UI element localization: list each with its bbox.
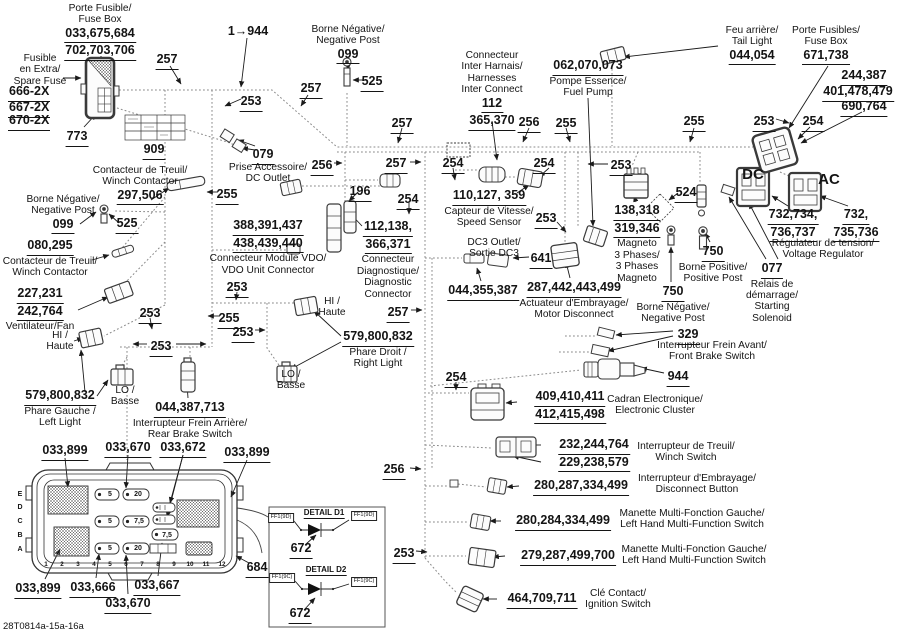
ref-641: 641 [530,251,553,269]
ref-257-e: 257 [387,305,410,323]
spare-fuse-label: Fusibleen Extra/Spare Fuse [14,53,67,87]
ref-256-b: 256 [311,158,334,176]
ref-672-d2: 672 [289,606,312,624]
magneto-label: 138,318319,346Magneto3 Phases/3 PhasesMa… [613,203,660,284]
winch-switch-nums: 232,244,764229,238,579 [558,437,630,472]
disconnect-num: 280,287,334,499 [533,478,629,496]
ref-909: 909 [143,142,166,160]
rear-brake-label: 044,387,713Interrupteur Frein Arrière/Re… [133,400,247,440]
winch-switch-label: Interrupteur de Treuil/Winch Switch [637,441,734,464]
dc3-outlet-label: DC3 Outlet/Sortie DC3 [467,237,520,260]
fb-pin-12: 12 [218,562,225,568]
starting-solenoid-label: 077Relais dedémarrage/StartingSolenoid [746,261,798,324]
fb-672: 033,672 [159,440,206,458]
fuel-pump-label: 062,070,073Pompe Essence/Fuel Pump [549,58,626,98]
motor-disconnect-label: 287,442,443,499Actuateur d'Embrayage/Mot… [520,280,629,320]
ref-255-a: 255 [555,116,578,134]
fb-899-top-right: 033,899 [223,445,270,463]
ref-255-b: 255 [683,114,706,132]
cluster-nums: 409,410,411412,415,498 [534,389,606,424]
hi-right-label: HI /Haute [318,296,345,319]
ref-690-764: 690,764 [840,99,887,117]
fb-pin-5: 5 [108,562,112,568]
lh-multi-label-2: Manette Multi-Fonction Gauche/Left Hand … [622,544,767,567]
right-light-label: 579,800,832Phare Droit /Right Light [342,329,414,369]
cluster-label: Cadran Electronique/Electronic Cluster [607,394,703,417]
fb-pin-4: 4 [92,562,96,568]
ref-524: 524 [675,185,698,203]
ref-1-944: 1→944 [228,24,268,40]
ref-196: 196 [349,184,372,202]
ref-253-f: 253 [139,306,162,324]
ref-257-b: 257 [300,81,323,99]
tag-d2-right: FF1(9C) [351,577,377,587]
ref-256-c: 256 [383,462,406,480]
fb-pin-11: 11 [203,562,210,568]
detail-d1-title: DETAIL D1 [304,508,345,519]
ref-257-a: 257 [156,52,179,70]
tag-d2-left: FF1(9C) [269,573,295,583]
ref-257-d: 257 [385,156,408,174]
fb-670-top: 033,670 [104,440,151,458]
regulator-nums-2: 732,735,736 [832,207,879,242]
ref-253-g: 253 [232,325,255,343]
spare-fuse-666: 666-2X [8,84,50,102]
fuse-val-20-1: 20 [134,491,142,498]
front-brake-label: Interrupteur Frein Avant/Front Brake Swi… [657,340,767,363]
ref-254-b: 254 [442,156,465,174]
disconnect-label: Interrupteur d'Embrayage/Disconnect Butt… [638,473,756,496]
ref-253-i: 253 [393,546,416,564]
wiring-diagram: Porte Fusible/Fuse Box033,675,684702,703… [0,0,900,635]
winch-contactor-top-label: Contacteur de Treuil/Winch Contactor297,… [93,165,188,205]
fan-label: 227,231242,764Ventilateur/Fan [6,286,75,333]
ref-044-355-387: 044,355,387 [447,283,519,301]
winch-contactor-2-label: 080,295Contacteur de Treuil/Winch Contac… [3,238,98,278]
ref-254-e: 254 [445,370,468,388]
ref-672-d1: 672 [290,541,313,559]
fb-667: 033,667 [133,578,180,596]
fb-pin-9: 9 [172,562,176,568]
diagram-part-code: 28T0814a-15a-16a [3,622,84,632]
ref-254-a: 254 [802,114,825,132]
fb-670-bottom: 033,670 [104,596,151,614]
fb-letter-b: B [17,532,22,539]
lo-right-label: LO /Basse [277,369,305,392]
ref-256-a: 256 [518,115,541,133]
fuse-box-top-label: Porte Fusible/Fuse Box033,675,684702,703… [64,3,136,61]
left-light-label: 579,800,832Phare Gauche /Left Light [24,388,96,428]
speed-sensor-label: 110,127, 359Capteur de Vitesse/Speed Sen… [444,188,533,228]
lh-multi-num-1: 280,284,334,499 [515,513,611,531]
fb-letter-d: D [17,504,22,511]
fb-pin-10: 10 [186,562,193,568]
label-layer: Porte Fusible/Fuse Box033,675,684702,703… [0,0,900,635]
dc-text: DC [742,167,764,182]
tag-d1-left: FF1(9D) [268,513,294,523]
negative-post-left-label: Borne Négative/Negative Post099 [26,194,99,234]
ref-257-c: 257 [391,116,414,134]
ref-253-e: 253 [226,280,249,298]
negative-post-750-label: 750Borne Négative/Negative Post [636,284,709,324]
interconnect-label: ConnecteurInter Harnais/HarnessesInter C… [461,50,522,131]
fb-899-bottom-left: 033,899 [14,581,61,599]
ref-773: 773 [66,129,89,147]
dc-outlet-label: Prise Accessoire/DC Outlet [229,162,307,185]
ref-255-c: 255 [216,187,239,205]
ref-254-d: 254 [397,192,420,210]
fb-666: 033,666 [69,580,116,598]
fb-letter-c: C [17,518,22,525]
fuse-val-75-2: 7,5 [162,532,172,539]
fuse-val-5-1: 5 [108,491,112,498]
negative-post-top-label: Borne Négative/Negative Post099 [311,24,384,64]
ref-944: 944 [667,369,690,387]
fb-pin-7: 7 [140,562,144,568]
ref-253-a: 253 [240,94,263,112]
detail-d2-title: DETAIL D2 [306,565,347,576]
lh-multi-label-1: Manette Multi-Fonction Gauche/Left Hand … [620,508,765,531]
ref-244-387: 244,387 [840,68,887,86]
fuse-val-20-2: 20 [134,545,142,552]
ref-254-c: 254 [533,156,556,174]
fb-pin-3: 3 [76,562,80,568]
ignition-label: Clé Contact/Ignition Switch [585,588,651,611]
fb-letter-e: E [18,491,23,498]
fuse-val-5-2: 5 [108,518,112,525]
ref-684: 684 [246,560,269,578]
ignition-num: 464,709,711 [507,591,578,609]
ref-253-b: 253 [753,114,776,132]
fb-letter-a: A [17,546,22,553]
ref-253-c: 253 [610,158,633,176]
fuse-val-75-1: 7,5 [134,518,144,525]
regulator-nums-1: 732,734,736,737 [768,207,819,242]
hi-left-label: HI /Haute [46,330,73,353]
ref-525-left: 525 [116,216,139,234]
ac-text: AC [818,172,840,187]
fb-pin-6: 6 [124,562,128,568]
ref-525-top: 525 [361,74,384,92]
fb-pin-1: 1 [44,562,48,568]
fb-899-top-left: 033,899 [41,443,88,461]
positive-post-label: 750Borne Positive/Positive Post [679,244,748,284]
vdo-connector-label: 388,391,437438,439,440Connecteur Module … [210,218,327,276]
fb-pin-8: 8 [156,562,160,568]
fuse-box-right-label: Porte Fusibles/Fuse Box671,738 [792,25,860,65]
tail-light-label: Feu arrière/Tail Light044,054 [726,25,779,65]
ref-253-h: 253 [150,339,173,357]
tag-d1-right: FF1(9D) [351,511,377,521]
spare-fuse-670: 670-2X [8,113,50,131]
diagnostic-connector-label: 112,138,366,371ConnecteurDiagnostique/Di… [357,219,419,300]
regulator-label: Régulateur de tension/Voltage Regulator [772,238,875,261]
ref-253-d: 253 [535,211,558,229]
lh-multi-num-2: 279,287,499,700 [520,548,616,566]
fuse-val-5-3: 5 [108,545,112,552]
fb-pin-2: 2 [60,562,64,568]
